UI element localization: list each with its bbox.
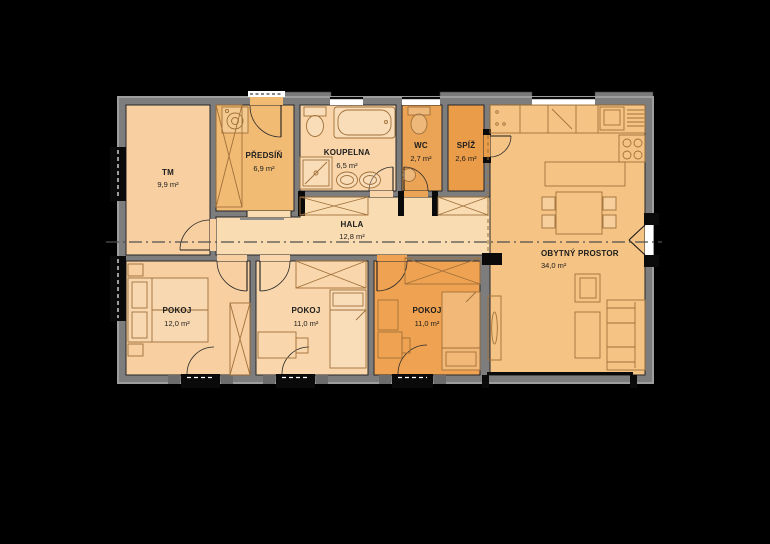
- window-frame: [487, 372, 633, 375]
- chair-icon: [603, 197, 616, 210]
- washing-machine-icon: [222, 107, 248, 133]
- room-area: 12,0 m²: [164, 319, 190, 328]
- bathtub-icon: [334, 107, 395, 138]
- basin-1: [337, 172, 358, 188]
- room-area: 11,0 m²: [294, 319, 319, 328]
- door-frame: [644, 255, 659, 267]
- door-opening: [404, 191, 428, 197]
- door-opening: [210, 219, 216, 251]
- wall-stub: [482, 253, 502, 265]
- floor-obytny-prostor: [490, 105, 645, 375]
- room-name: POKOJ: [412, 306, 441, 315]
- window-jamb: [316, 375, 328, 384]
- window-jamb: [434, 375, 446, 384]
- window-left-pokoj-1: [110, 256, 126, 321]
- toilet-tank: [304, 107, 326, 116]
- bed-body: [442, 292, 480, 370]
- wall-stub: [483, 157, 491, 163]
- room-area: 9,9 m²: [157, 180, 179, 189]
- bed-body: [330, 290, 366, 368]
- room-area: 12,8 m²: [339, 232, 365, 241]
- window-frame: [276, 374, 315, 388]
- door-opening: [217, 255, 247, 261]
- passage-opening: [247, 211, 291, 217]
- room-name: POKOJ: [291, 306, 320, 315]
- window-jamb: [630, 375, 637, 388]
- room-name: OBYTNÝ PROSTOR: [541, 249, 619, 258]
- window-frame: [181, 374, 220, 388]
- room-name: KOUPELNA: [324, 148, 371, 157]
- door-opening: [370, 191, 393, 197]
- window-frame: [392, 374, 433, 388]
- room-area: 6,5 m²: [336, 161, 358, 170]
- basin-2: [360, 172, 381, 188]
- window-frame: [402, 97, 440, 99]
- room-area: 11,0 m²: [415, 319, 440, 328]
- window-frame: [532, 97, 595, 99]
- door-opening: [260, 255, 290, 261]
- corner-sink: [403, 169, 416, 182]
- window-top-koupelna: [330, 97, 363, 105]
- wall-stub: [432, 191, 438, 216]
- window-jamb: [482, 375, 489, 388]
- bed-icon-pokoj-2: [330, 290, 366, 368]
- room-name: SPÍŽ: [457, 141, 476, 150]
- room-area: 2,7 m²: [410, 154, 432, 163]
- chair-icon: [542, 215, 555, 228]
- window-top-kitchen: [532, 97, 595, 105]
- window-frame: [330, 97, 363, 99]
- door-opening: [377, 255, 407, 261]
- window-glass: [402, 99, 440, 106]
- window-left-tm: [110, 147, 126, 201]
- floor-plan-canvas: TM 9,9 m² PŘEDSÍŇ 6,9 m² KOUPELNA 6,5 m²…: [0, 0, 770, 544]
- chair-icon: [603, 215, 616, 228]
- room-area: 6,9 m²: [253, 164, 275, 173]
- room-area: 34,0 m²: [541, 261, 567, 270]
- shower-icon: [300, 157, 332, 189]
- window-glass: [532, 99, 595, 106]
- room-name: POKOJ: [162, 306, 191, 315]
- toilet-bowl: [411, 114, 427, 134]
- door-frame: [644, 213, 659, 225]
- window-glass: [330, 99, 363, 106]
- toilet-bowl: [307, 116, 324, 137]
- room-name: TM: [162, 168, 174, 177]
- wall-stub: [298, 191, 305, 216]
- window-jamb: [221, 375, 233, 384]
- room-name: WC: [414, 141, 428, 150]
- window-jamb: [168, 375, 180, 384]
- door-opening: [250, 97, 283, 105]
- window-jamb: [263, 375, 275, 384]
- door-opening: [484, 135, 490, 157]
- window-jamb: [379, 375, 391, 384]
- room-area: 2,6 m²: [455, 154, 477, 163]
- room-name: PŘEDSÍŇ: [246, 151, 283, 160]
- room-name: HALA: [340, 220, 363, 229]
- bed-icon-pokoj-3: [442, 292, 480, 370]
- door-opening: [645, 225, 653, 255]
- wall-stub: [398, 191, 404, 216]
- window-top-wc-spiz: [402, 97, 440, 105]
- chair-icon: [542, 197, 555, 210]
